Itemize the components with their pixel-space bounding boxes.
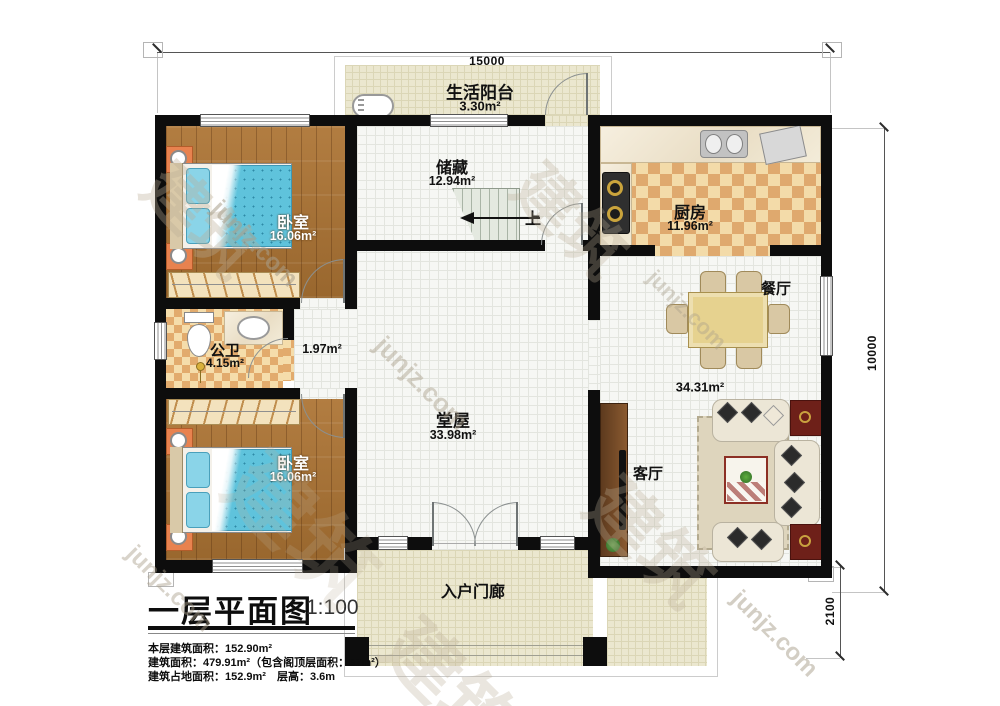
porch-label: 入户门廊 xyxy=(441,578,505,602)
sink-icon xyxy=(237,316,270,340)
kitchen-area: 11.96m² xyxy=(667,219,713,233)
living-label: 客厅 xyxy=(633,463,663,484)
watermark-text: junjz.com xyxy=(725,585,823,683)
wardrobe-rail xyxy=(172,284,296,285)
doorway-patch xyxy=(588,320,600,390)
plan-scale: 1:100 xyxy=(306,596,359,620)
stairs-arrow-icon xyxy=(460,212,474,224)
open-area-label: 34.31m² xyxy=(676,380,724,395)
hall-area: 33.98m² xyxy=(430,428,477,442)
dimension-corner-value: 2100 xyxy=(823,597,837,626)
door-leaf xyxy=(343,259,345,303)
wall-hall-kitchen-upper xyxy=(588,115,600,320)
storage-area: 12.94m² xyxy=(429,174,476,188)
bedroom-bottom-area: 16.06m² xyxy=(270,470,317,484)
sink-basin xyxy=(705,134,722,154)
wall-bedroom-divider-upper xyxy=(345,115,357,309)
extension-line xyxy=(832,128,884,129)
wall-bedroom-divider-lower xyxy=(345,388,357,573)
floor-drain-icon xyxy=(196,362,205,371)
window-hall-south-left xyxy=(378,536,408,550)
corner-marker xyxy=(148,572,174,587)
stairs-up-label: 上 xyxy=(525,205,541,229)
corridor-area: 1.97m² xyxy=(302,342,342,356)
dining-label: 餐厅 xyxy=(761,278,791,299)
tv-icon xyxy=(619,450,626,530)
dimension-line-top xyxy=(157,52,830,53)
porch-column xyxy=(583,637,607,666)
wardrobe-icon xyxy=(168,272,300,298)
wall-living-south xyxy=(588,566,832,578)
extension-line xyxy=(806,658,840,659)
plant-icon xyxy=(606,538,620,552)
window-balcony-slider xyxy=(430,114,508,127)
bed-sheet-fold xyxy=(212,165,246,247)
wall-top-mid xyxy=(508,115,545,126)
bed-sheet-fold xyxy=(212,449,246,531)
title-info-line3: 建筑占地面积：152.9m² 层高：3.6m xyxy=(148,668,335,684)
title-rule-thick xyxy=(148,626,355,630)
door-leaf xyxy=(586,73,588,115)
side-table-medallion xyxy=(799,411,811,423)
dining-chair-icon xyxy=(736,271,762,294)
wall-storage-south xyxy=(357,240,545,251)
pillow-icon xyxy=(186,208,210,244)
plan-title: 一层平面图 xyxy=(148,586,313,631)
dining-table-icon xyxy=(688,292,768,348)
door-leaf xyxy=(581,203,583,245)
wall-hall-south-b xyxy=(408,537,432,550)
doorway-patch xyxy=(545,115,588,126)
wardrobe-rail xyxy=(172,411,296,412)
water-heater-knobs xyxy=(358,99,364,113)
sink-basin xyxy=(726,134,743,154)
bathroom-area: 4.15m² xyxy=(206,356,244,370)
title-rule-thin xyxy=(148,633,355,634)
coffee-table-runner xyxy=(727,482,765,501)
side-table-medallion xyxy=(799,535,811,547)
window-dining xyxy=(820,276,833,356)
door-leaf xyxy=(516,502,518,546)
floor-drain-stem xyxy=(200,371,201,383)
bed-headboard xyxy=(170,163,183,249)
bedroom-top-area: 16.06m² xyxy=(270,229,317,243)
wall-bedroom-bottom-north xyxy=(155,388,300,399)
sofa-icon xyxy=(712,522,784,562)
bed-headboard xyxy=(170,447,183,533)
wall-hall-south-a xyxy=(357,537,378,550)
wall-top-right xyxy=(588,115,832,126)
wall-kitchen-south-a xyxy=(600,245,655,256)
dimension-line-corner xyxy=(840,566,841,658)
wardrobe-icon xyxy=(168,399,300,425)
door-leaf xyxy=(343,394,345,438)
wall-bath-corridor xyxy=(283,309,294,340)
balcony-area: 3.30m² xyxy=(459,99,500,114)
pillow-icon xyxy=(186,168,210,204)
dining-chair-icon xyxy=(736,346,762,369)
dining-chair-icon xyxy=(700,346,726,369)
plant-icon xyxy=(740,471,752,483)
burner-icon xyxy=(607,206,623,222)
dining-chair-icon xyxy=(666,304,688,334)
dining-chair-icon xyxy=(700,271,726,294)
dining-chair-icon xyxy=(768,304,790,334)
porch-step-line xyxy=(369,655,583,656)
window-hall-south-right xyxy=(540,536,575,550)
dimension-top-value: 15000 xyxy=(469,54,505,68)
toilet-icon xyxy=(184,312,214,323)
window-bathroom xyxy=(154,322,167,360)
wall-bedroom-top-south xyxy=(155,298,300,309)
dimension-right-value: 10000 xyxy=(865,335,879,371)
pillow-icon xyxy=(186,452,210,488)
wall-kitchen-south-b xyxy=(770,245,832,256)
floor-plan-canvas: 生活阳台 3.30m² 储藏 12.94m² 上 厨房 11.96m² 卧室 1… xyxy=(0,0,1000,706)
burner-icon xyxy=(607,180,623,196)
dimension-line-right xyxy=(884,128,885,592)
pillow-icon xyxy=(186,492,210,528)
window-bedroom-bottom xyxy=(212,559,303,573)
porch-step-line xyxy=(369,645,583,646)
extension-line xyxy=(157,52,158,113)
extension-line xyxy=(830,52,831,113)
door-leaf xyxy=(432,502,434,546)
wall-hall-south-d xyxy=(575,537,600,550)
wall-hall-south-c xyxy=(518,537,540,550)
window-bedroom-top xyxy=(200,114,310,127)
lamp-icon xyxy=(170,247,187,264)
wall-storage-post xyxy=(583,240,600,251)
